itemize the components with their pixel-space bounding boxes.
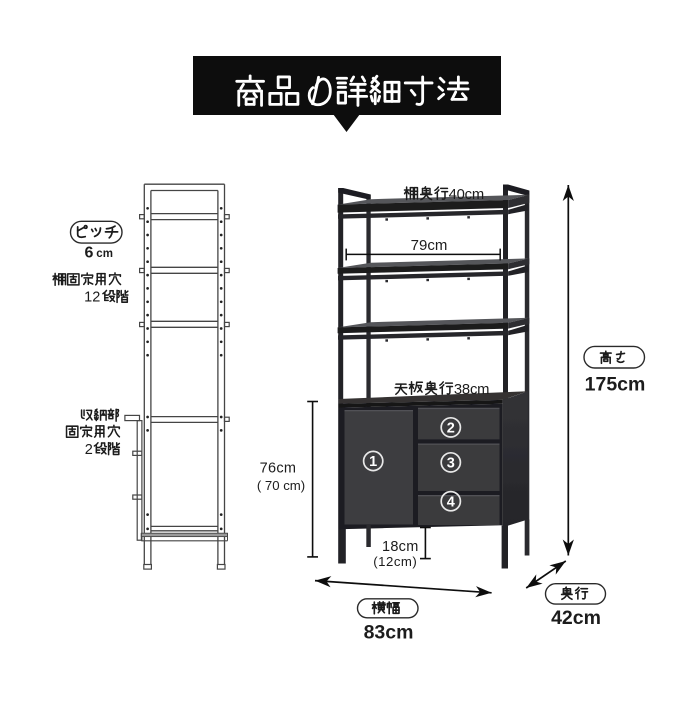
svg-text:76cm: 76cm (260, 461, 297, 477)
svg-text:cm: cm (96, 248, 113, 260)
svg-text:6: 6 (85, 245, 94, 262)
svg-text:175cm: 175cm (585, 373, 646, 395)
svg-text:18cm: 18cm (382, 539, 419, 555)
svg-text:40cm: 40cm (449, 187, 484, 203)
svg-text:42cm: 42cm (551, 607, 601, 629)
svg-text:12: 12 (84, 290, 100, 306)
svg-text:( 70 cm): ( 70 cm) (257, 478, 305, 493)
svg-text:1: 1 (369, 454, 377, 470)
svg-text:(12cm): (12cm) (373, 554, 417, 569)
svg-text:79cm: 79cm (411, 237, 448, 254)
svg-text:2: 2 (85, 442, 93, 458)
svg-text:2: 2 (447, 421, 455, 437)
svg-text:4: 4 (447, 494, 455, 510)
svg-text:38cm: 38cm (454, 382, 489, 398)
svg-text:83cm: 83cm (364, 621, 414, 643)
svg-text:3: 3 (447, 456, 455, 472)
